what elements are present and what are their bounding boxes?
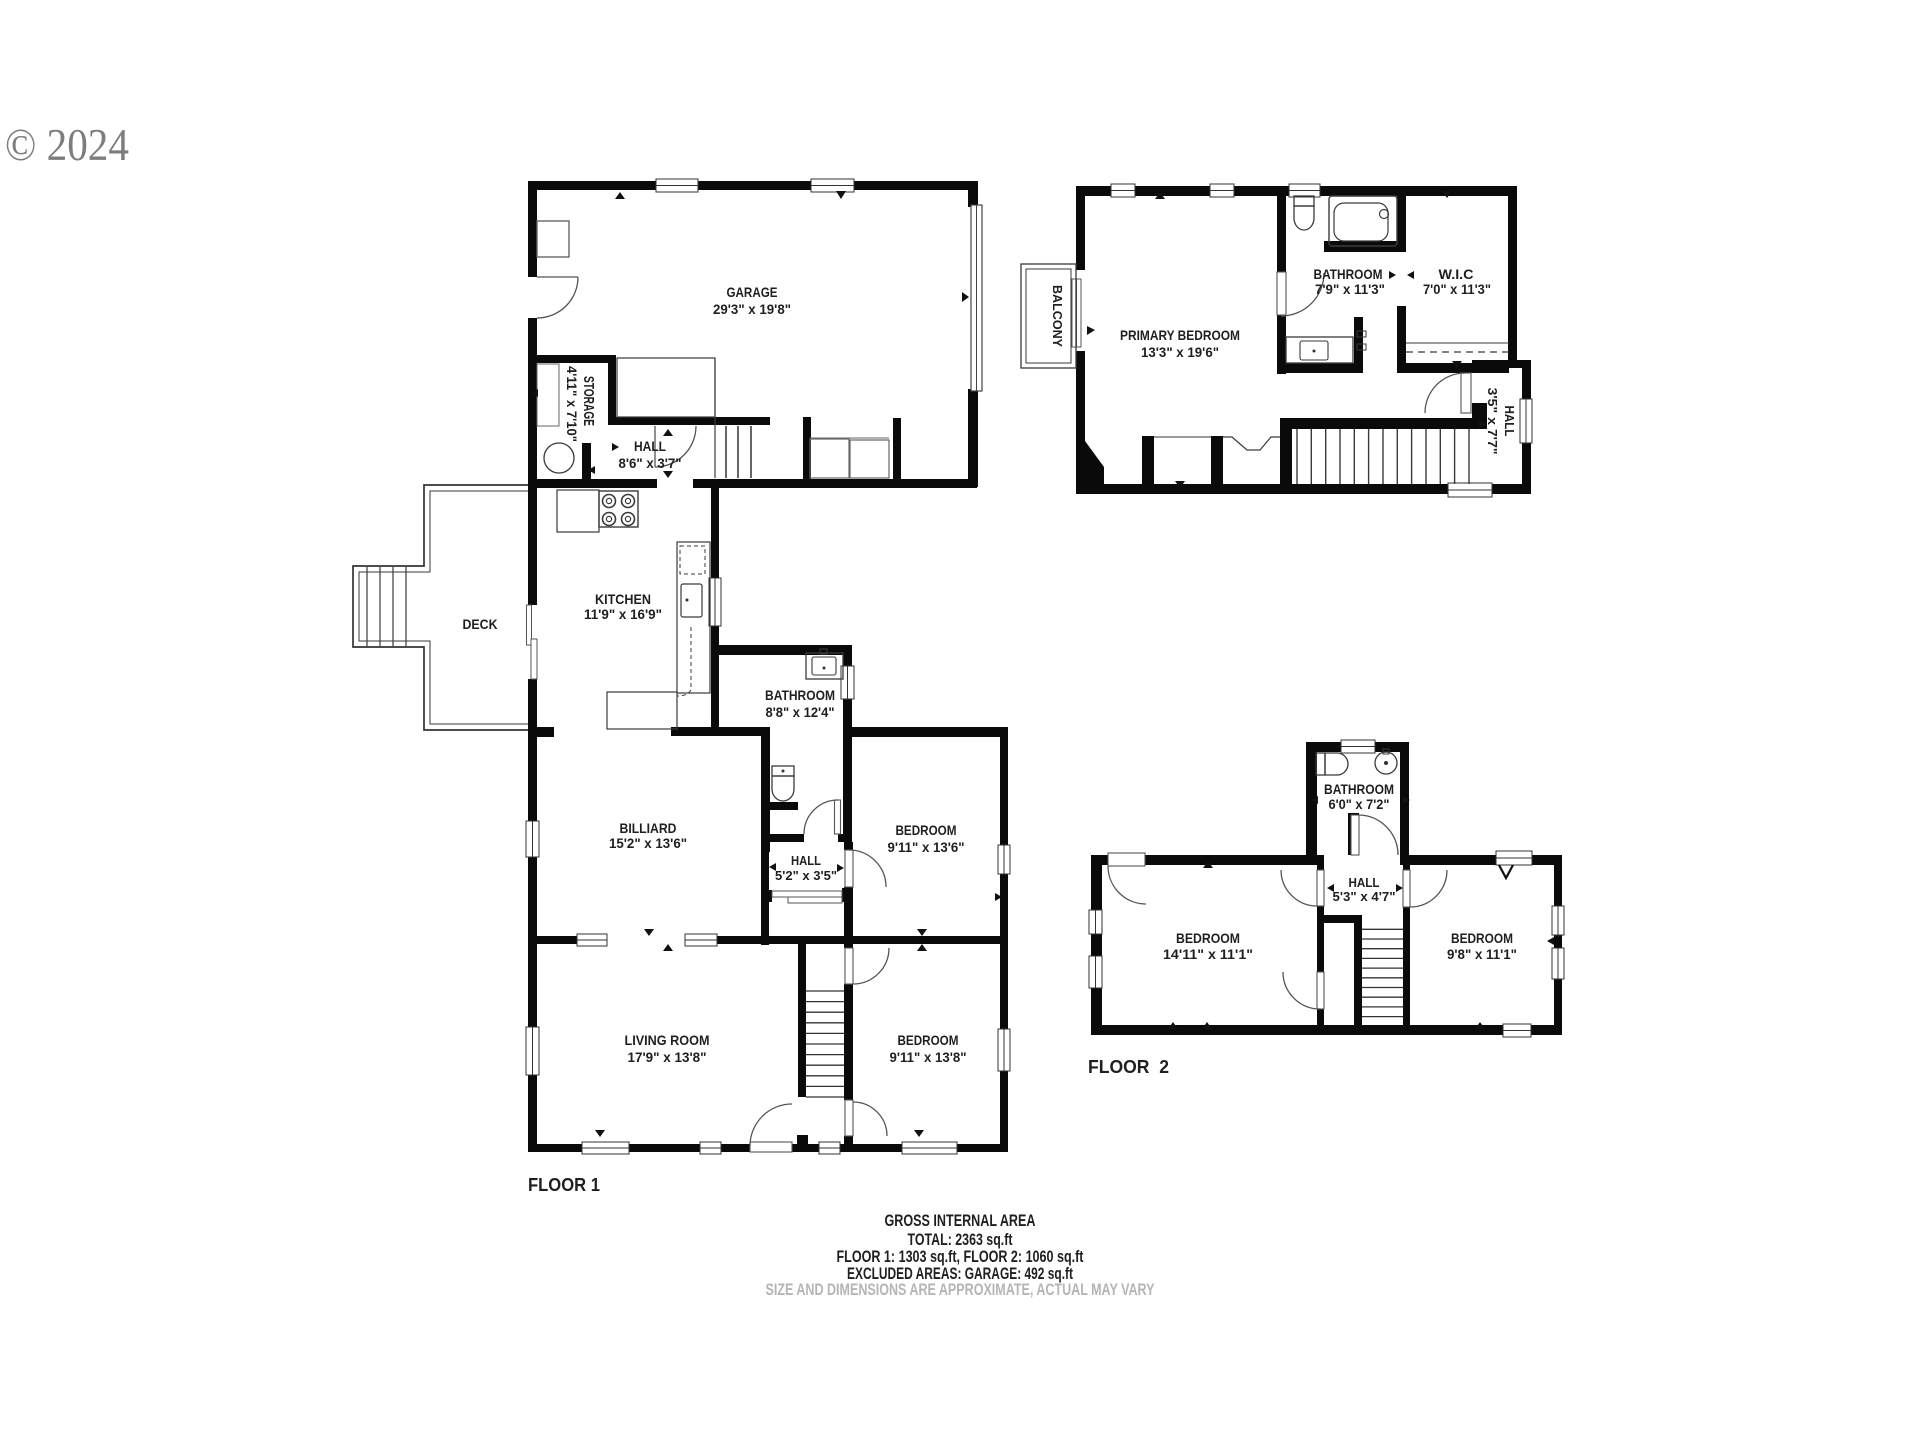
svg-text:BATHROOM: BATHROOM [1324,781,1394,797]
svg-text:TOTAL: 2363 sq.ft: TOTAL: 2363 sq.ft [908,1231,1013,1249]
svg-text:6'0" x 7'2": 6'0" x 7'2" [1329,796,1390,812]
svg-text:BEDROOM: BEDROOM [1451,930,1513,946]
svg-text:DECK: DECK [463,616,498,632]
svg-text:8'8" x 12'4": 8'8" x 12'4" [766,704,835,720]
svg-text:BEDROOM: BEDROOM [1176,930,1240,946]
svg-text:9'8" x 11'1": 9'8" x 11'1" [1447,946,1517,962]
svg-text:BATHROOM: BATHROOM [1314,266,1383,282]
svg-text:GARAGE: GARAGE [727,284,778,300]
svg-text:BILLIARD: BILLIARD [620,820,677,836]
svg-text:15'2" x 13'6": 15'2" x 13'6" [609,835,687,851]
svg-text:GROSS INTERNAL AREA: GROSS INTERNAL AREA [885,1212,1036,1230]
svg-text:KITCHEN: KITCHEN [595,591,651,607]
svg-text:HALL: HALL [791,854,821,868]
svg-text:W.I.C: W.I.C [1439,266,1474,282]
svg-text:5'3" x 4'7": 5'3" x 4'7" [1333,890,1396,904]
svg-text:SIZE AND DIMENSIONS ARE APPROX: SIZE AND DIMENSIONS ARE APPROXIMATE, ACT… [766,1281,1155,1299]
svg-text:4'11" x 7'10": 4'11" x 7'10" [564,366,580,442]
svg-text:8'6" x 3'7": 8'6" x 3'7" [619,455,682,471]
svg-text:7'9" x 11'3": 7'9" x 11'3" [1315,281,1385,297]
svg-text:© 2024: © 2024 [5,120,129,170]
svg-text:3'5" x 7'7": 3'5" x 7'7" [1485,388,1499,455]
svg-text:BALCONY: BALCONY [1050,285,1064,348]
svg-text:FLOOR 1: 1303 sq.ft, FLOOR 2:: FLOOR 1: 1303 sq.ft, FLOOR 2: 1060 sq.ft [837,1248,1084,1266]
svg-text:17'9" x 13'8": 17'9" x 13'8" [628,1049,707,1065]
svg-text:29'3" x 19'8": 29'3" x 19'8" [713,301,791,317]
svg-text:9'11" x 13'6": 9'11" x 13'6" [888,839,965,855]
svg-text:7'0" x 11'3": 7'0" x 11'3" [1423,281,1491,297]
svg-text:FLOOR 1: FLOOR 1 [528,1175,600,1195]
svg-text:HALL: HALL [1502,406,1517,437]
svg-text:14'11" x 11'1": 14'11" x 11'1" [1163,946,1253,962]
svg-text:HALL: HALL [634,438,666,454]
svg-text:FLOOR 2: FLOOR 2 [1088,1057,1169,1077]
svg-text:5'2" x 3'5": 5'2" x 3'5" [775,869,837,883]
svg-text:BATHROOM: BATHROOM [765,687,835,703]
svg-text:LIVING ROOM: LIVING ROOM [625,1032,710,1048]
svg-text:9'11" x 13'8": 9'11" x 13'8" [890,1049,967,1065]
svg-text:11'9" x 16'9": 11'9" x 16'9" [584,606,662,622]
svg-text:PRIMARY BEDROOM: PRIMARY BEDROOM [1120,327,1240,343]
svg-text:13'3" x 19'6": 13'3" x 19'6" [1141,344,1219,360]
svg-text:BEDROOM: BEDROOM [898,1032,959,1048]
svg-text:HALL: HALL [1349,876,1380,890]
svg-text:BEDROOM: BEDROOM [896,822,957,838]
svg-text:STORAGE: STORAGE [580,376,597,426]
